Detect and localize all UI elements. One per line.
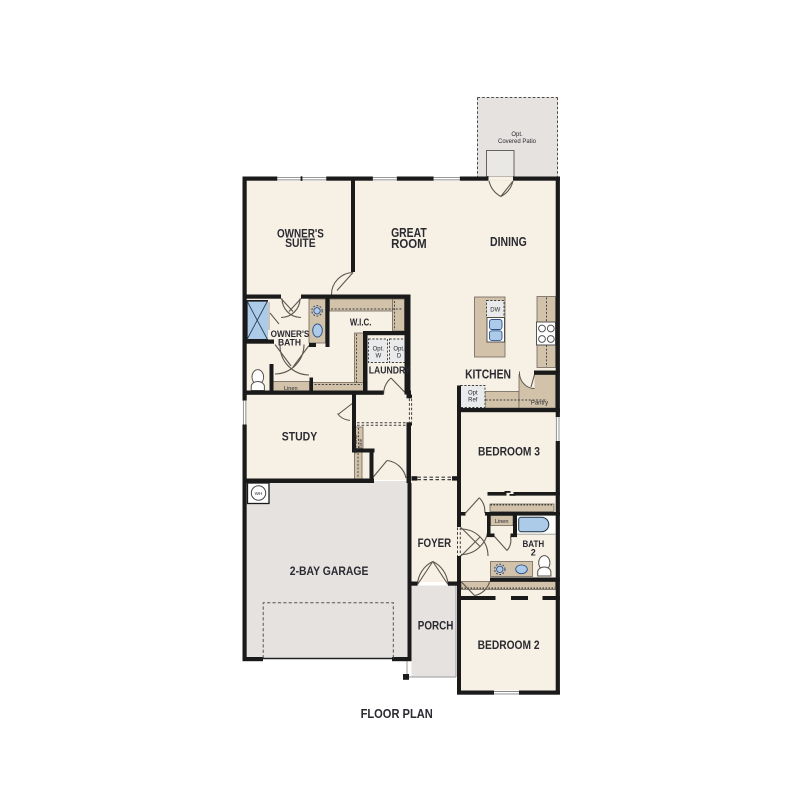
svg-text:Covered Patio: Covered Patio <box>498 139 537 145</box>
svg-text:Opt.: Opt. <box>511 132 523 138</box>
svg-text:DW: DW <box>490 308 500 314</box>
svg-text:2: 2 <box>531 547 536 557</box>
svg-text:BEDROOM 3: BEDROOM 3 <box>478 446 540 458</box>
svg-text:DINING: DINING <box>490 234 527 249</box>
svg-text:W: W <box>375 354 381 360</box>
svg-text:LAUNDRY: LAUNDRY <box>369 365 411 377</box>
svg-text:W.I.C.: W.I.C. <box>350 317 372 328</box>
svg-text:ROOM: ROOM <box>391 236 427 251</box>
svg-text:2-BAY GARAGE: 2-BAY GARAGE <box>290 564 369 578</box>
svg-text:BEDROOM 2: BEDROOM 2 <box>478 640 540 652</box>
svg-text:SUITE: SUITE <box>285 238 316 250</box>
svg-text:Zone: Zone <box>358 438 363 449</box>
svg-text:D: D <box>397 354 402 360</box>
svg-text:KITCHEN: KITCHEN <box>465 367 511 382</box>
svg-text:WH: WH <box>255 491 263 496</box>
svg-text:FOYER: FOYER <box>418 538 452 550</box>
svg-text:Opt.: Opt. <box>373 347 385 353</box>
svg-text:Linen: Linen <box>495 519 509 525</box>
svg-text:PORCH: PORCH <box>418 620 454 632</box>
svg-text:STUDY: STUDY <box>282 430 317 444</box>
svg-text:Ref: Ref <box>468 398 478 404</box>
svg-text:Linen: Linen <box>284 386 298 392</box>
svg-text:FLOOR PLAN: FLOOR PLAN <box>361 706 433 721</box>
svg-text:BATH: BATH <box>278 338 301 348</box>
svg-text:Opt.: Opt. <box>393 347 405 353</box>
svg-text:Pantry: Pantry <box>531 401 548 407</box>
svg-text:Opt: Opt <box>468 391 478 397</box>
